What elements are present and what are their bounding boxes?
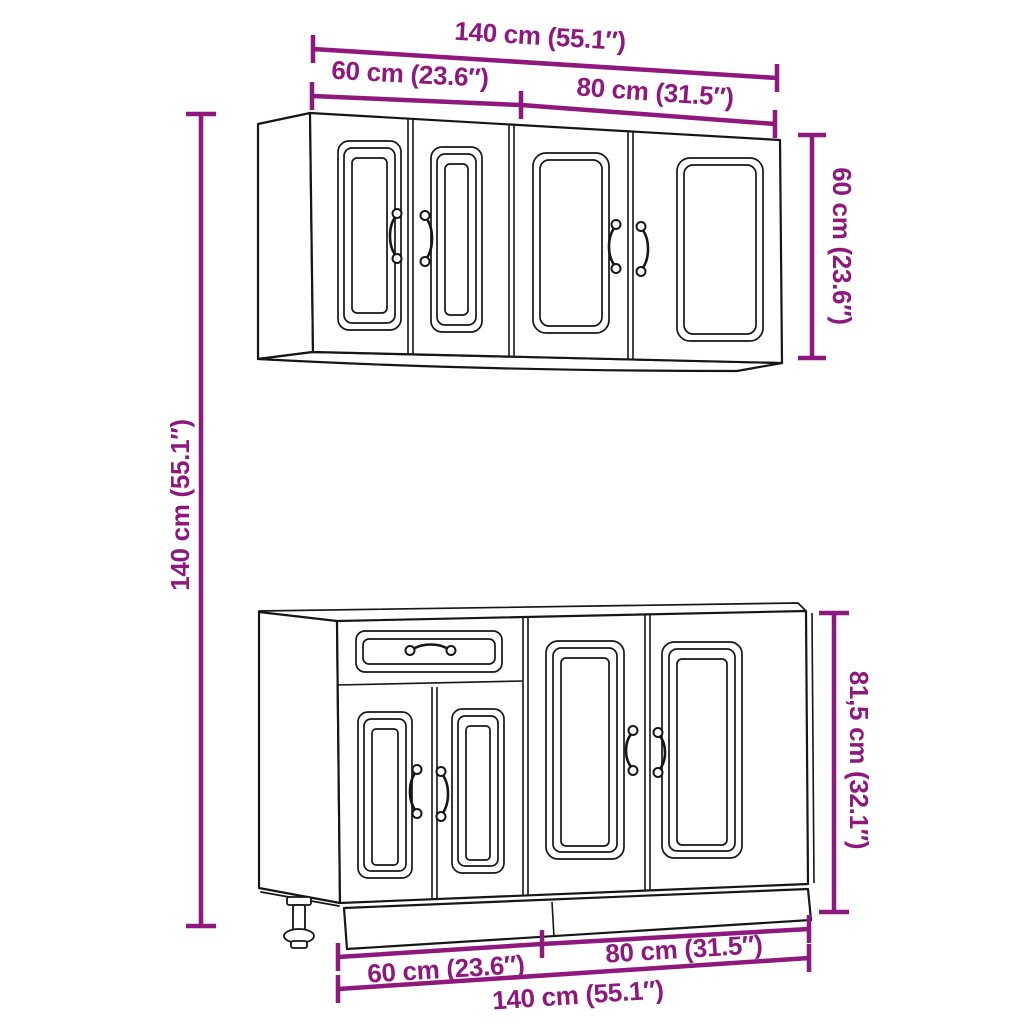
dim-base-cabinet-height: 81,5 cm (32.1″) [819,613,874,912]
product-dimension-diagram: 140 cm (55.1″) 60 cm (23.6″) 80 cm (31.5… [0,0,1024,1024]
adjustable-leg [284,897,314,948]
base-cabinet [259,603,814,949]
wall-cabinet [258,113,782,371]
dim-label-wall-height: 60 cm (23.6″) [827,167,857,324]
dim-label-overall-height: 140 cm (55.1″) [165,419,195,591]
dim-label-bottom-total: 140 cm (55.1″) [491,974,664,1015]
dim-top-left-width: 60 cm (23.6″) [312,55,521,119]
cabinet-set-drawing: 140 cm (55.1″) 60 cm (23.6″) 80 cm (31.5… [0,0,1024,1024]
wall-cabinet-side-panel [258,113,313,359]
dim-label-base-height: 81,5 cm (32.1″) [844,671,874,850]
dim-overall-height: 140 cm (55.1″) [165,114,216,926]
base-cabinet-side-panel [259,612,340,903]
base-right-edge-line [812,613,814,883]
dim-label-top-right: 80 cm (31.5″) [576,71,735,112]
base-top-back-edge [259,603,806,611]
dim-wall-cabinet-height: 60 cm (23.6″) [798,135,857,358]
dim-line [798,135,826,358]
dim-label-top-total: 140 cm (55.1″) [454,16,627,56]
